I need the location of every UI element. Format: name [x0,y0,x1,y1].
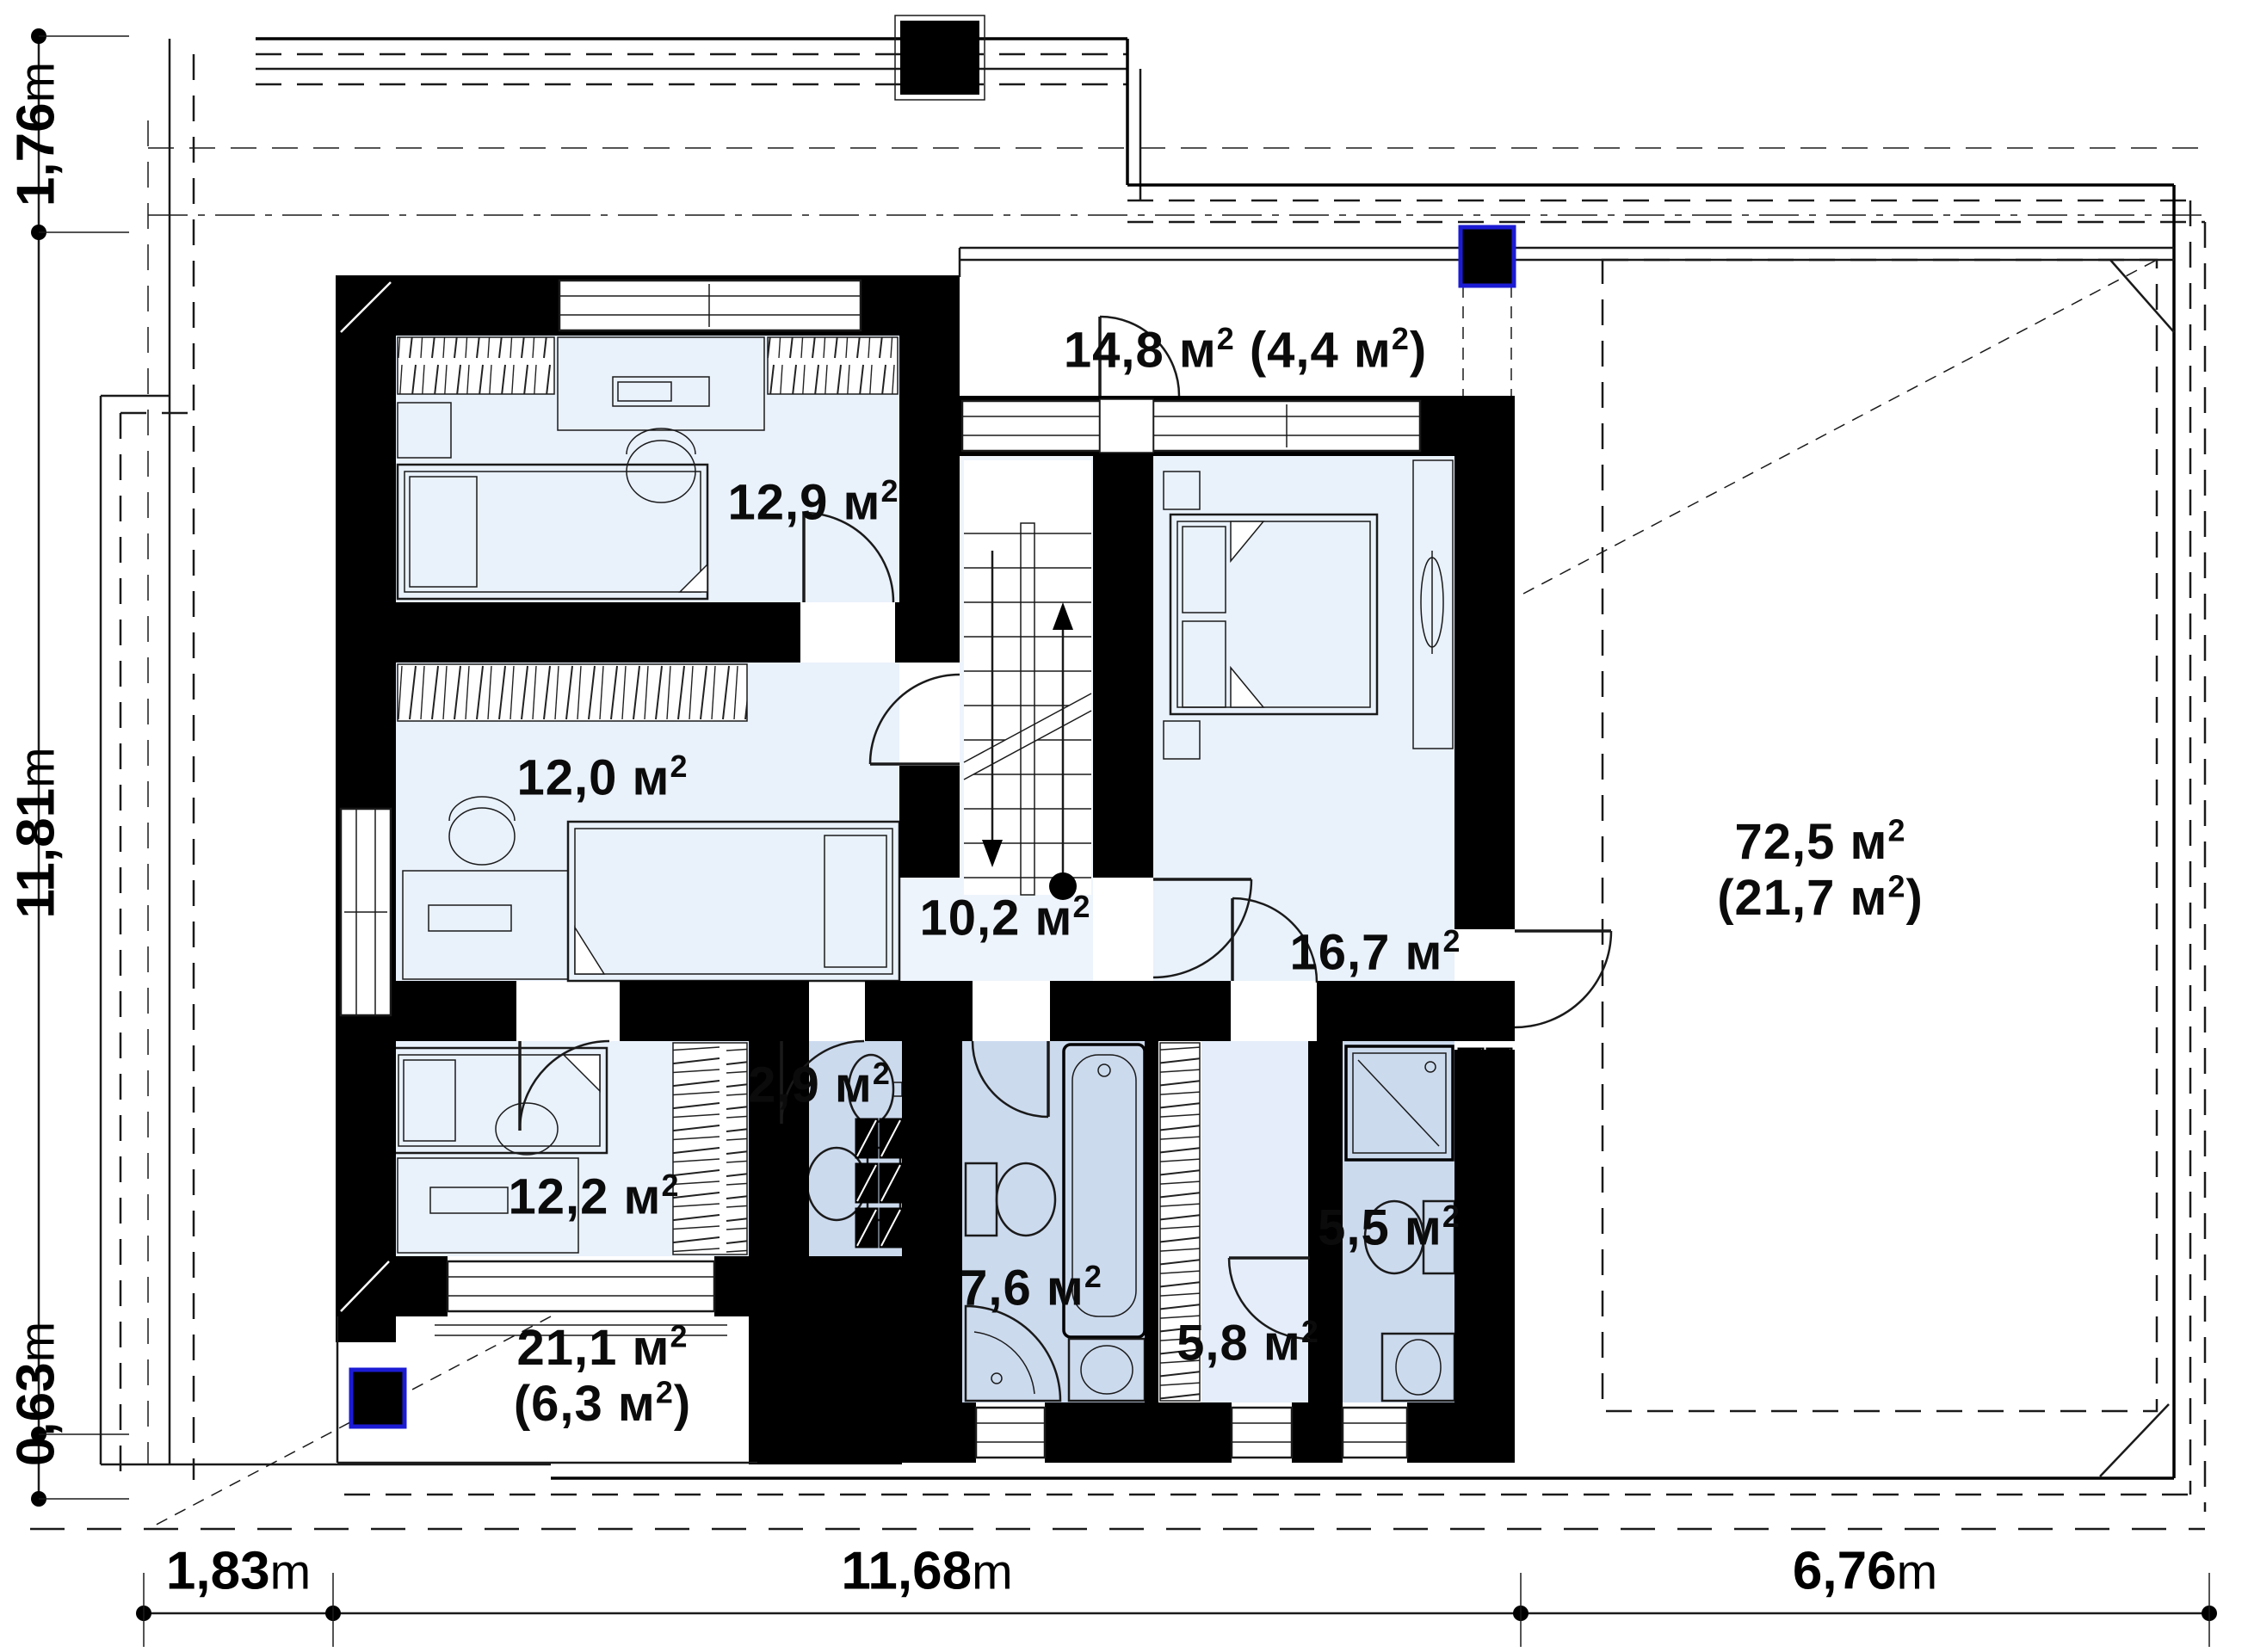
room-label-master-bathroom: 5,5 м2 [1318,1201,1461,1257]
room-label-bedroom-bottom-left: 12,2 м2 [509,1170,680,1226]
room-label-wardrobe: 5,8 м2 [1176,1316,1319,1372]
dim-label-left-2: 11,81m [6,747,67,918]
dim-label-bottom-1: 1,83m [166,1541,311,1602]
chimney-icon [351,1370,405,1427]
balcony-door-opening [1100,399,1153,453]
room-label-balcony: 14,8 м2 (4,4 м2) [1064,324,1427,379]
dim-label-left-1: 1,76m [6,62,67,206]
wardrobe-hatch-icon [398,337,554,394]
chimney-icon [1461,227,1514,286]
room-label-bedroom-mid-left: 12,0 м2 [517,751,689,807]
window-icon [1153,401,1420,451]
room-label-terrace-bottom-left: 21,1 м2(6,3 м2) [514,1321,691,1433]
room-label-hall: 10,2 м2 [920,891,1091,947]
dim-label-left-3: 0,63m [6,1322,67,1466]
window-icon [559,280,861,330]
room-label-bedroom-top-left: 12,9 м2 [728,476,899,532]
window-icon [1232,1408,1292,1458]
master-bedroom-floor [1153,456,1454,981]
window-icon [341,809,391,1015]
floor-plan-canvas: 14,8 м2 (4,4 м2) 12,9 м2 12,0 м2 10,2 м2… [0,0,2248,1652]
window-icon [962,401,1100,451]
dim-label-bottom-2: 11,68m [841,1541,1012,1602]
chimney-icon [895,15,985,100]
door-icon [1515,931,1611,1027]
room-label-roof-terrace-right: 72,5 м2(21,7 м2) [1717,815,1924,927]
wardrobe-hatch-icon [398,664,747,721]
wardrobe-hatch-icon [673,1043,747,1254]
window-icon [976,1408,1045,1458]
dim-label-bottom-3: 6,76m [1793,1541,1937,1602]
room-label-master-bedroom: 16,7 м2 [1290,926,1461,982]
wardrobe-hatch-icon [768,337,898,394]
staircase [964,460,1091,900]
room-label-bathroom: 7,6 м2 [960,1261,1102,1317]
room-label-wc: 2,9 м2 [748,1058,891,1114]
window-icon [1343,1408,1407,1458]
